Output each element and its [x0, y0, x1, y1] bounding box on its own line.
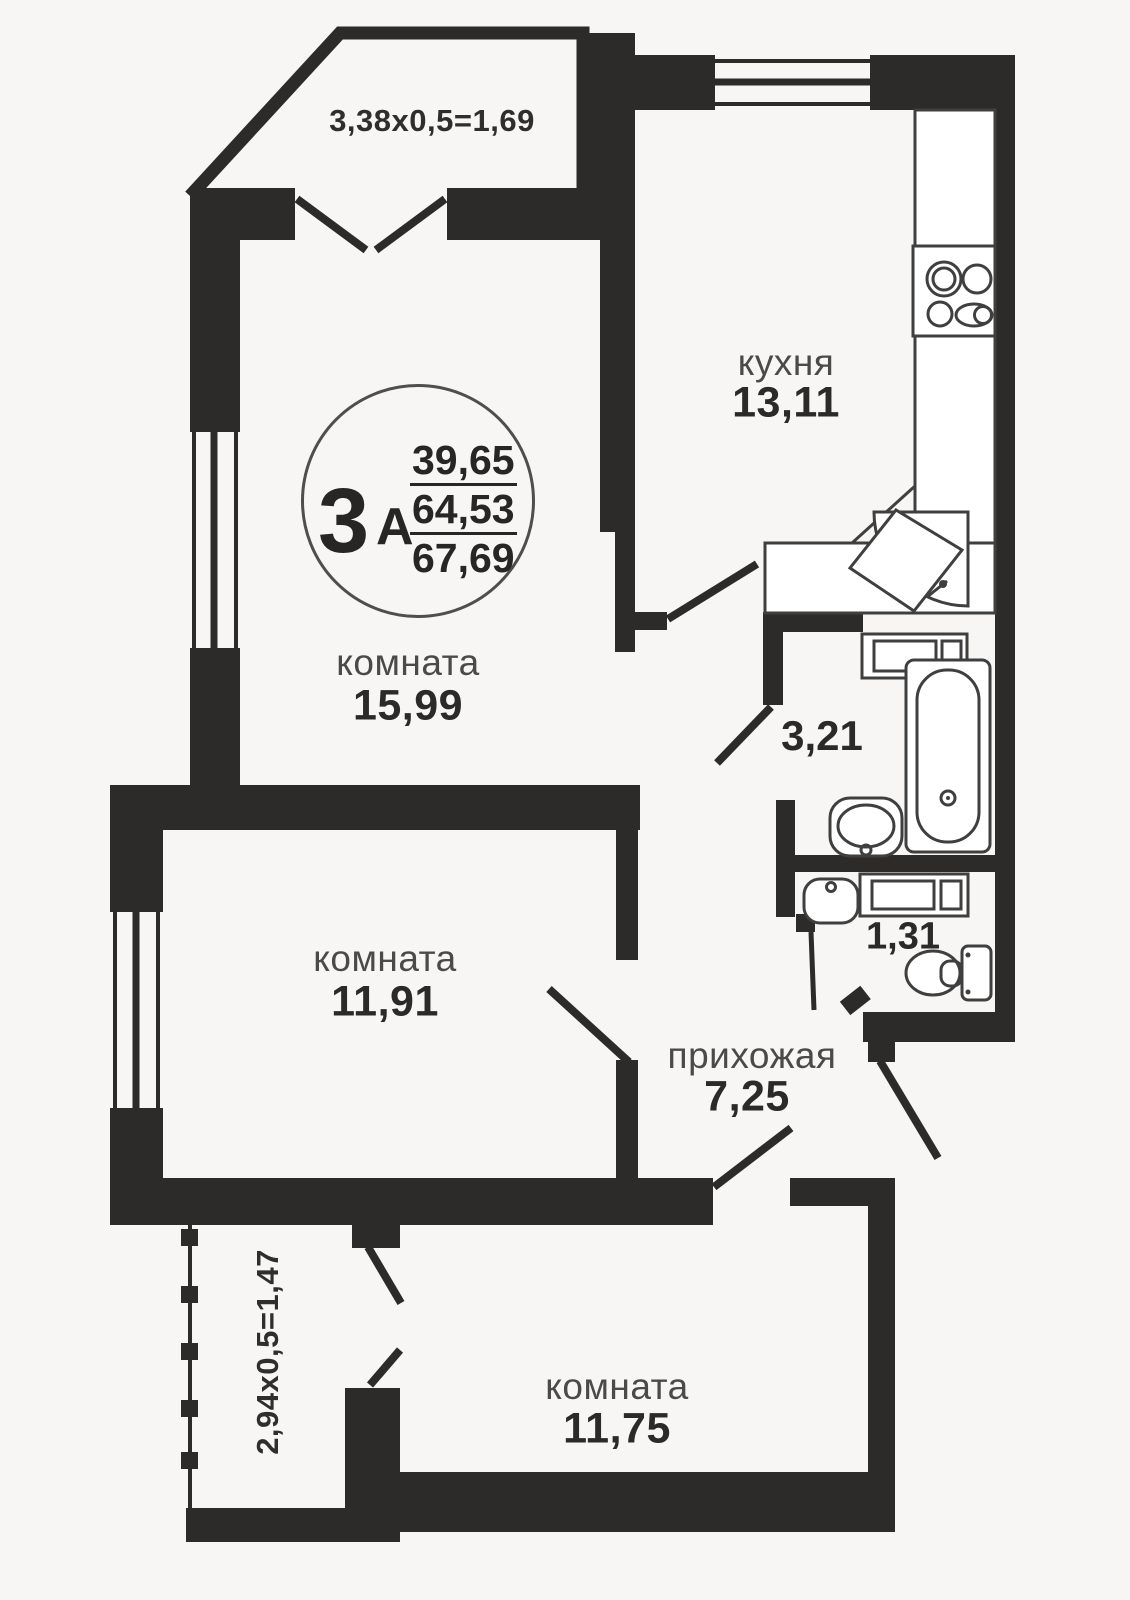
balcony-french-door-right — [376, 199, 445, 250]
wall-segment — [868, 1042, 895, 1062]
window-living — [188, 432, 240, 648]
unit-info-circle: 3 А 39,65 64,53 67,69 — [301, 384, 535, 618]
unit-area-living: 39,65 — [410, 437, 517, 486]
unit-area-total: 67,69 — [410, 535, 517, 581]
wall-segment — [763, 632, 783, 705]
unit-areas: 39,65 64,53 67,69 — [410, 437, 517, 581]
railing-post — [181, 1343, 198, 1360]
wall-segment — [110, 785, 640, 830]
walls — [110, 33, 1015, 1542]
wall-segment — [352, 1222, 400, 1248]
wall-segment — [870, 55, 1015, 110]
window-bedroom — [110, 912, 163, 1108]
floor-plan: 3 А 39,65 64,53 67,69 3,38x0,5=1,69 кухн… — [0, 0, 1130, 1600]
living-room-area: 15,99 — [353, 682, 463, 731]
railing-post — [181, 1452, 198, 1469]
entry-door — [880, 1061, 938, 1158]
balcony-bottom-dimensions: 2,94x0,5=1,47 — [250, 1249, 286, 1455]
wall-segment — [190, 240, 240, 432]
unit-type-letter: А — [376, 501, 414, 553]
bathroom-area: 3,21 — [781, 712, 863, 760]
wall-segment — [763, 612, 863, 632]
balcony2-door-lower — [370, 1350, 400, 1385]
living-room-label: комната — [336, 642, 479, 684]
railing-post — [181, 1286, 198, 1303]
wall-segment — [868, 1178, 895, 1532]
kitchen-area: 13,11 — [732, 379, 840, 428]
balcony-top-dimensions: 3,38x0,5=1,69 — [329, 103, 535, 139]
bathroom-sink — [830, 798, 902, 856]
balcony2-door-upper — [368, 1247, 401, 1303]
bedroom2-area: 11,75 — [563, 1405, 671, 1454]
balcony-railing — [181, 1222, 198, 1516]
wall-segment — [635, 55, 715, 110]
wall-segment — [190, 648, 240, 808]
washing-machine-wc — [860, 874, 968, 916]
kitchen-door — [668, 564, 757, 619]
bedroom2-label: комната — [545, 1366, 688, 1408]
railing-post — [181, 1400, 198, 1417]
wall-segment — [840, 986, 871, 1015]
wall-segment — [776, 855, 1015, 872]
wall-segment — [863, 1012, 1015, 1042]
wall-segment — [110, 830, 163, 912]
bedroom2-door — [714, 1128, 791, 1187]
wall-segment — [615, 532, 635, 652]
wall-segment — [776, 872, 795, 917]
wall-segment — [600, 188, 635, 532]
unit-rooms-count: 3 — [318, 475, 369, 567]
wall-segment — [616, 1060, 638, 1195]
bedroom-area: 11,91 — [331, 978, 439, 1027]
wc-area: 1,31 — [866, 916, 940, 959]
window-kitchen — [715, 55, 870, 110]
wall-segment — [186, 1508, 400, 1542]
wall-segment — [400, 1472, 868, 1532]
hallway-area: 7,25 — [704, 1073, 790, 1122]
floor-plan-drawing — [0, 0, 1130, 1600]
railing-post — [181, 1229, 198, 1246]
hallway-label: прихожая — [668, 1035, 837, 1077]
bathtub — [906, 660, 990, 852]
stove — [913, 246, 995, 336]
wc-door — [811, 932, 814, 1010]
unit-area-main: 64,53 — [410, 486, 517, 535]
bathroom-door — [717, 707, 771, 763]
bedroom-door — [549, 989, 629, 1062]
wc-sink — [804, 879, 858, 923]
wall-segment — [995, 55, 1015, 1042]
balcony-french-door-left — [297, 199, 366, 250]
bedroom-label: комната — [313, 938, 456, 980]
wall-segment — [616, 808, 638, 960]
wall-segment — [635, 612, 667, 630]
wall-segment — [190, 188, 295, 240]
